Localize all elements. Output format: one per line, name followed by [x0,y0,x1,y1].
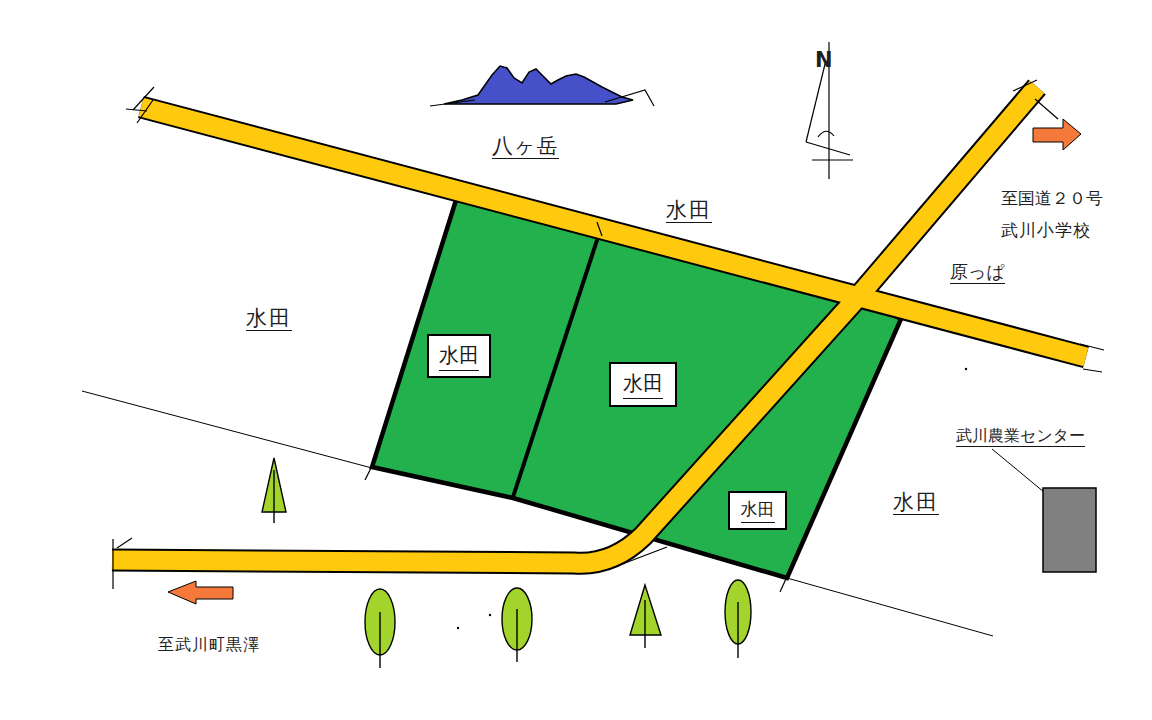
mountain-label: 八ヶ岳 [492,135,559,159]
boundary-line-left [82,391,372,468]
mountain-illustration [444,66,633,104]
grassland-label: 原っぱ [950,263,1005,284]
north-label: N [815,49,833,71]
paddy-label-box-3: 水田 [728,491,787,530]
direction-arrow-left-icon [168,581,233,604]
agriculture-center-label: 武川農業センター [956,428,1085,447]
kurosawa-label: 至武川町黒澤 [158,637,260,654]
direction-arrow-right-icon [1033,119,1081,150]
paddy-label-left: 水田 [246,307,292,331]
building-agriculture-center [1043,488,1096,572]
map-canvas: N 八ヶ岳 水田 水田 水田 水田 水田 水田 原っぱ 至国道２０号 武川小学校… [0,0,1152,720]
route20-label: 至国道２０号 [1001,190,1103,208]
boundary-line-right [787,578,993,636]
school-label: 武川小学校 [1001,222,1091,240]
map-drawing [0,0,1152,720]
paddy-label-right: 水田 [893,491,939,515]
paddy-label-top: 水田 [666,199,712,223]
paddy-label-box-1: 水田 [427,334,491,378]
north-arrowhead-icon [818,131,834,137]
paddy-label-box-2: 水田 [609,362,677,407]
